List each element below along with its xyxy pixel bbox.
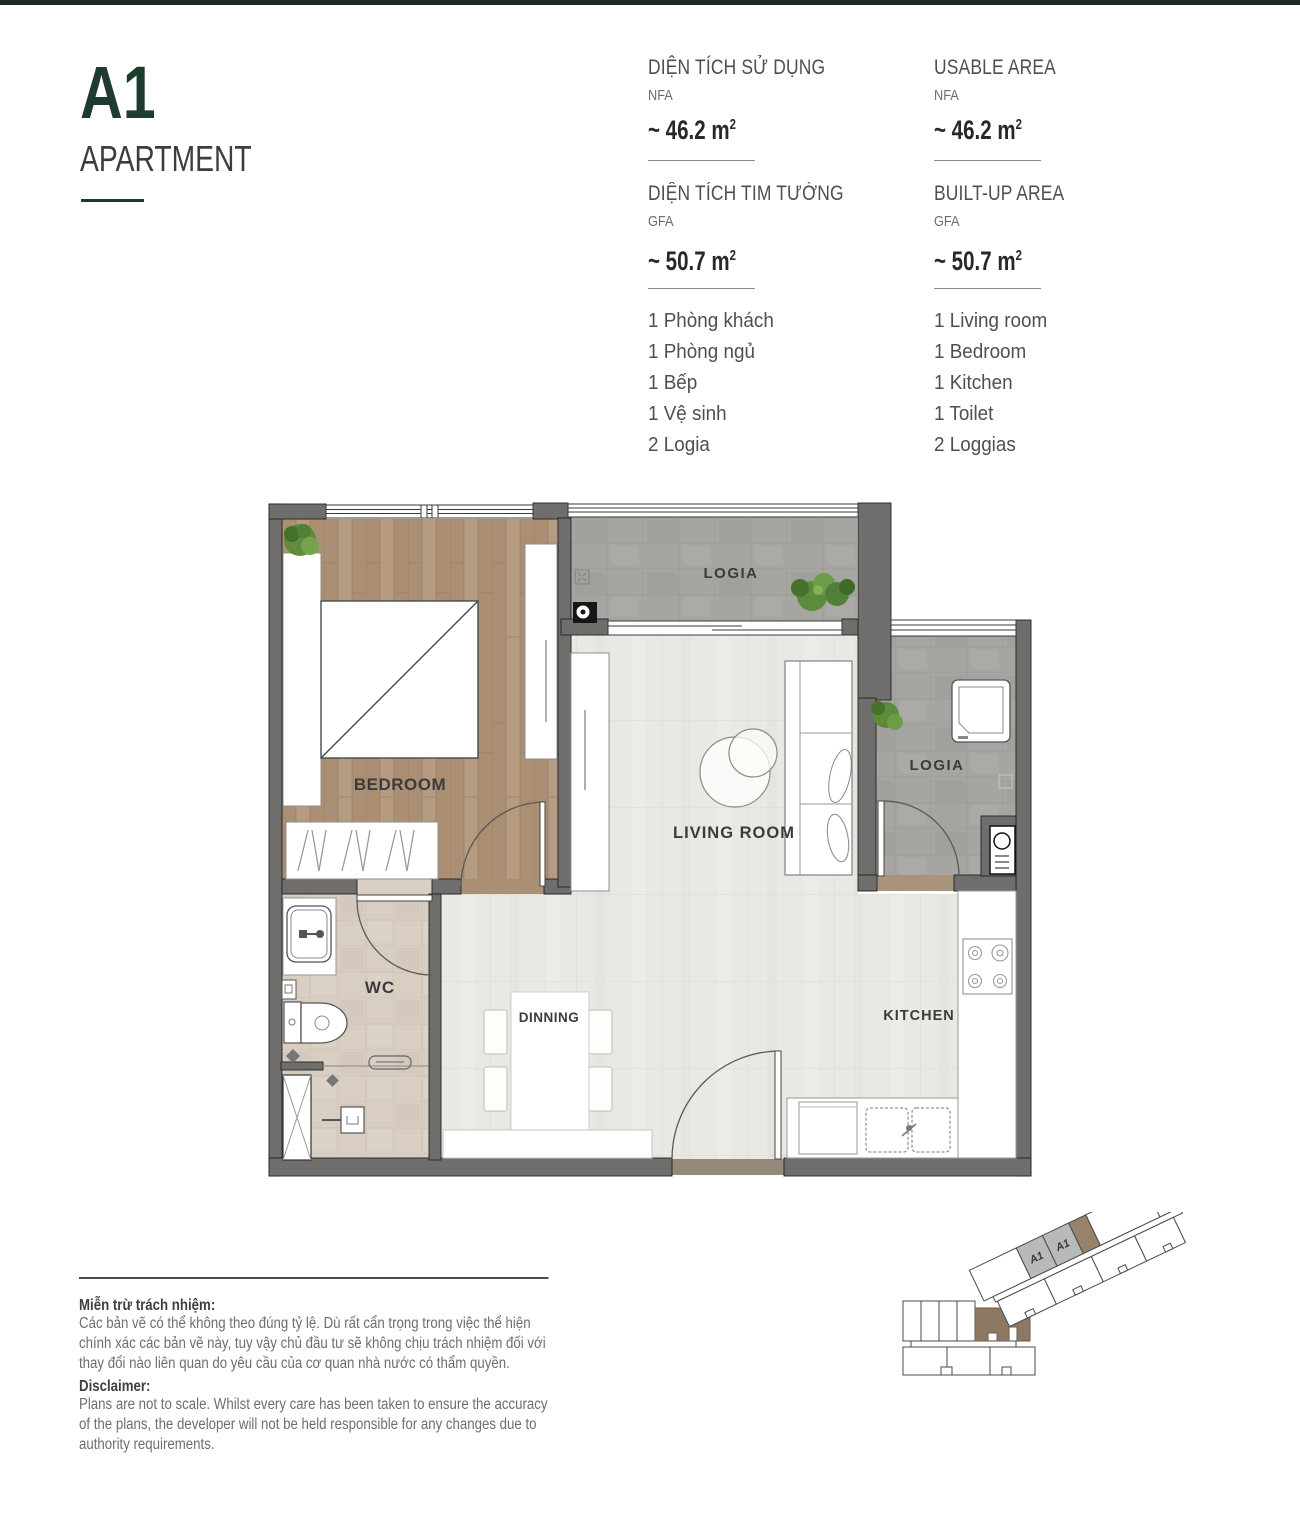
- svg-text:DINNING: DINNING: [519, 1010, 580, 1025]
- svg-text:LOGIA: LOGIA: [704, 565, 759, 582]
- svg-text:BEDROOM: BEDROOM: [354, 775, 446, 794]
- svg-text:WC: WC: [365, 978, 395, 997]
- svg-text:KITCHEN: KITCHEN: [883, 1008, 954, 1024]
- svg-text:LIVING ROOM: LIVING ROOM: [673, 824, 795, 842]
- svg-text:LOGIA: LOGIA: [910, 757, 965, 774]
